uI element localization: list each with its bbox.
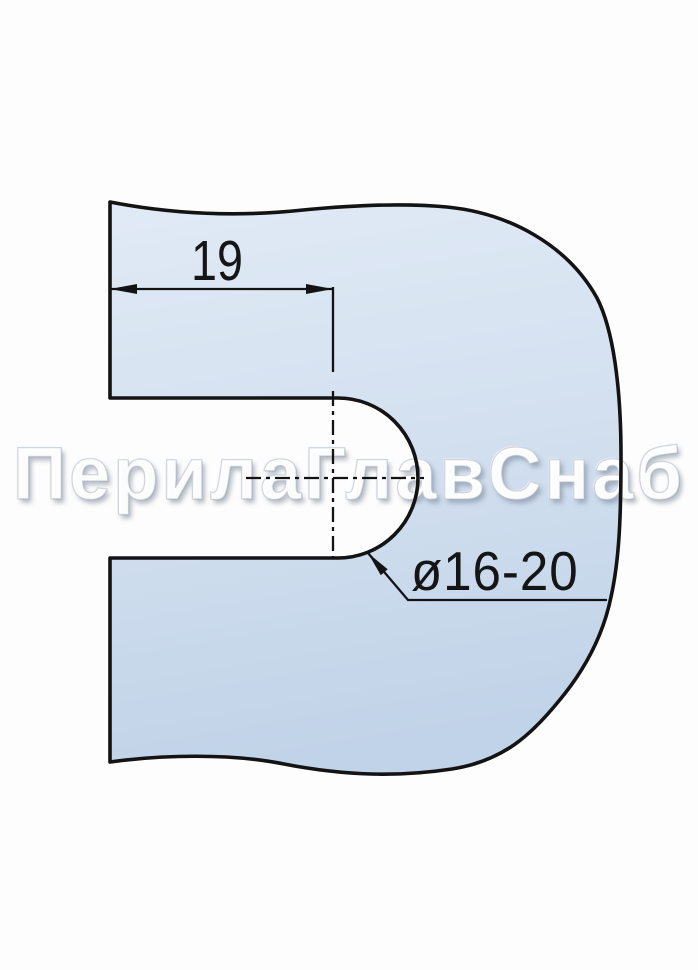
linework-layer xyxy=(0,0,698,970)
width-dimension-label: 19 xyxy=(191,233,243,290)
dimension-arrow-left xyxy=(110,284,137,294)
part-cross-section-outline xyxy=(110,202,621,774)
technical-drawing-glass-clamp-profile: ПерилаГлавСнаб 19 ø16-20 xyxy=(0,0,698,970)
dimension-arrow-right xyxy=(306,284,333,294)
diameter-dimension-label: ø16-20 xyxy=(411,544,579,599)
